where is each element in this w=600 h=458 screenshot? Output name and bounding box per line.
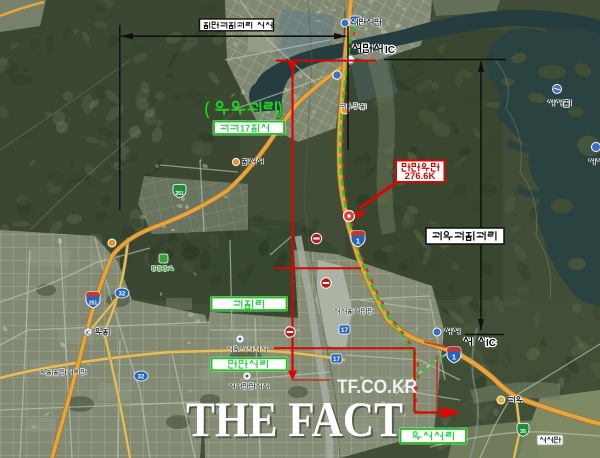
svg-text:17: 17 xyxy=(240,124,250,134)
svg-text:17: 17 xyxy=(333,356,341,363)
svg-text:): ) xyxy=(277,99,283,119)
svg-text:THE FACT: THE FACT xyxy=(186,391,403,447)
svg-text:32: 32 xyxy=(119,292,126,298)
svg-text:IC: IC xyxy=(385,45,395,56)
svg-text:276.6K: 276.6K xyxy=(405,171,436,182)
svg-text:IC: IC xyxy=(86,331,91,337)
svg-text:35: 35 xyxy=(520,429,526,435)
svg-text:(: ( xyxy=(204,99,210,119)
svg-text:17: 17 xyxy=(341,327,349,334)
svg-text:1: 1 xyxy=(356,237,360,246)
svg-text:251: 251 xyxy=(175,191,184,197)
svg-text:1: 1 xyxy=(452,353,456,362)
svg-text:32: 32 xyxy=(138,375,145,381)
svg-text:IC: IC xyxy=(486,338,496,349)
svg-text:251: 251 xyxy=(89,301,98,307)
